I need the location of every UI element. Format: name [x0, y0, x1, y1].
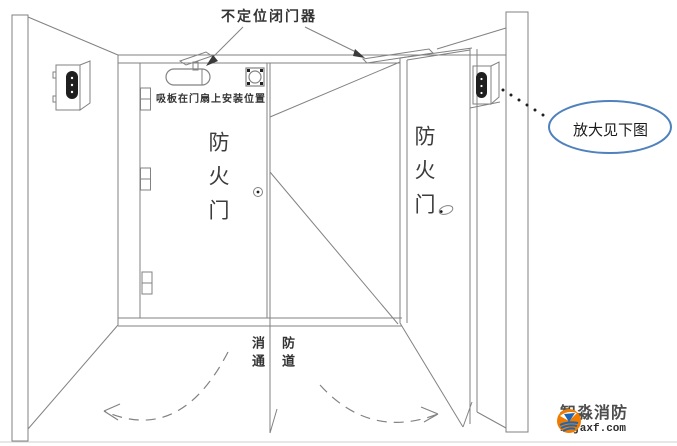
door-closer-label: 不定位闭门器	[221, 6, 317, 26]
centerline-arrow	[270, 409, 277, 433]
fire-door-diagram: 不定位闭门器 吸板在门扇上安装位置 防火门 防火门 消通 防道 放大见下图 智淼…	[0, 0, 677, 446]
right-magnetic-holder-icon	[470, 62, 500, 108]
left-door-handle-icon	[254, 188, 263, 197]
left-door-label: 防火门	[202, 131, 232, 233]
doorway-perspective-lines	[270, 62, 400, 324]
right-door-handle-icon	[438, 204, 454, 216]
diagram-canvas	[0, 0, 677, 446]
passage-label-left-column: 消通	[248, 336, 267, 372]
right-door-leaf	[363, 48, 477, 427]
suction-plate-icon	[246, 68, 264, 86]
right-door-label: 防火门	[408, 125, 438, 227]
site-logo: 智淼消防 zmjaxf.com	[556, 406, 628, 435]
wall-lines	[0, 17, 677, 442]
door-hinges	[141, 88, 153, 294]
left-door-leaf	[140, 63, 270, 433]
suction-plate-label: 吸板在门扇上安装位置	[156, 90, 266, 105]
passage-label-right-column: 防道	[278, 336, 297, 372]
dotted-leader	[502, 89, 545, 117]
right-door-closer-icon	[363, 49, 433, 63]
left-magnetic-holder-icon	[53, 61, 90, 110]
right-door-swing-arc	[320, 385, 438, 422]
door-closer-icon	[166, 52, 212, 85]
right-wall-section	[506, 12, 528, 432]
label-leader-lines	[206, 27, 365, 66]
left-wall-section	[12, 15, 28, 441]
logo-icon	[556, 406, 583, 436]
callout-label: 放大见下图	[550, 119, 671, 140]
left-door-swing-arc	[104, 352, 228, 420]
